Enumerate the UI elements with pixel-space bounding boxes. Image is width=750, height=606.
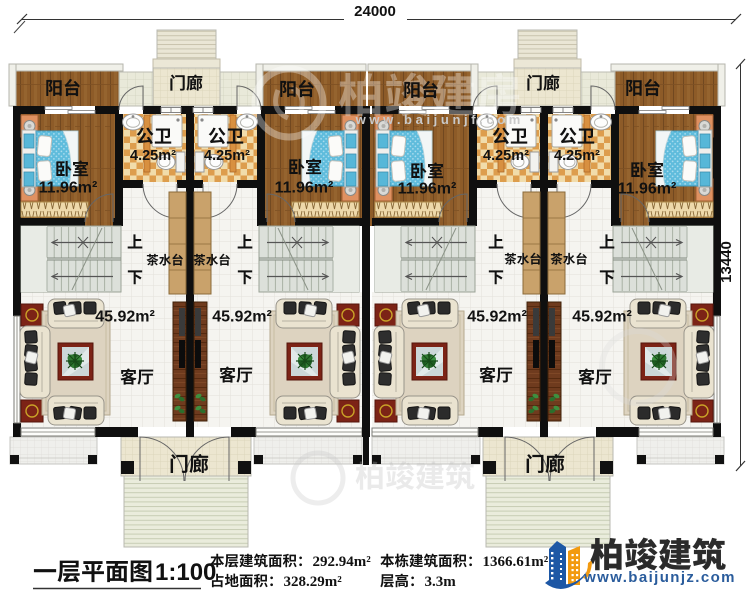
svg-text:4.25m²: 4.25m² xyxy=(554,148,600,164)
svg-text:1:100: 1:100 xyxy=(155,559,216,586)
svg-text:3.3m: 3.3m xyxy=(425,574,457,590)
svg-text:45.92m²: 45.92m² xyxy=(212,309,272,326)
svg-text:11.96m²: 11.96m² xyxy=(39,180,98,197)
svg-text:292.94m²: 292.94m² xyxy=(313,554,372,570)
svg-text:24000: 24000 xyxy=(354,3,396,20)
svg-text:11.96m²: 11.96m² xyxy=(275,180,334,197)
svg-text:13440: 13440 xyxy=(718,241,735,283)
svg-text:4.25m²: 4.25m² xyxy=(204,148,250,164)
svg-text:11.96m²: 11.96m² xyxy=(618,181,677,198)
svg-text:45.92m²: 45.92m² xyxy=(95,309,155,326)
svg-text:11.96m²: 11.96m² xyxy=(398,181,457,198)
svg-text:www.baijunjz.com: www.baijunjz.com xyxy=(583,569,736,586)
svg-text:45.92m²: 45.92m² xyxy=(467,309,527,326)
svg-text:w w w . b a i j u n j f . c o: w w w . b a i j u n j f . c o m xyxy=(355,112,521,127)
svg-text:4.25m²: 4.25m² xyxy=(130,148,176,164)
svg-text:1366.61m²: 1366.61m² xyxy=(483,554,549,570)
svg-text:45.92m²: 45.92m² xyxy=(572,309,632,326)
svg-text:328.29m²: 328.29m² xyxy=(284,574,343,590)
svg-text:4.25m²: 4.25m² xyxy=(483,148,529,164)
